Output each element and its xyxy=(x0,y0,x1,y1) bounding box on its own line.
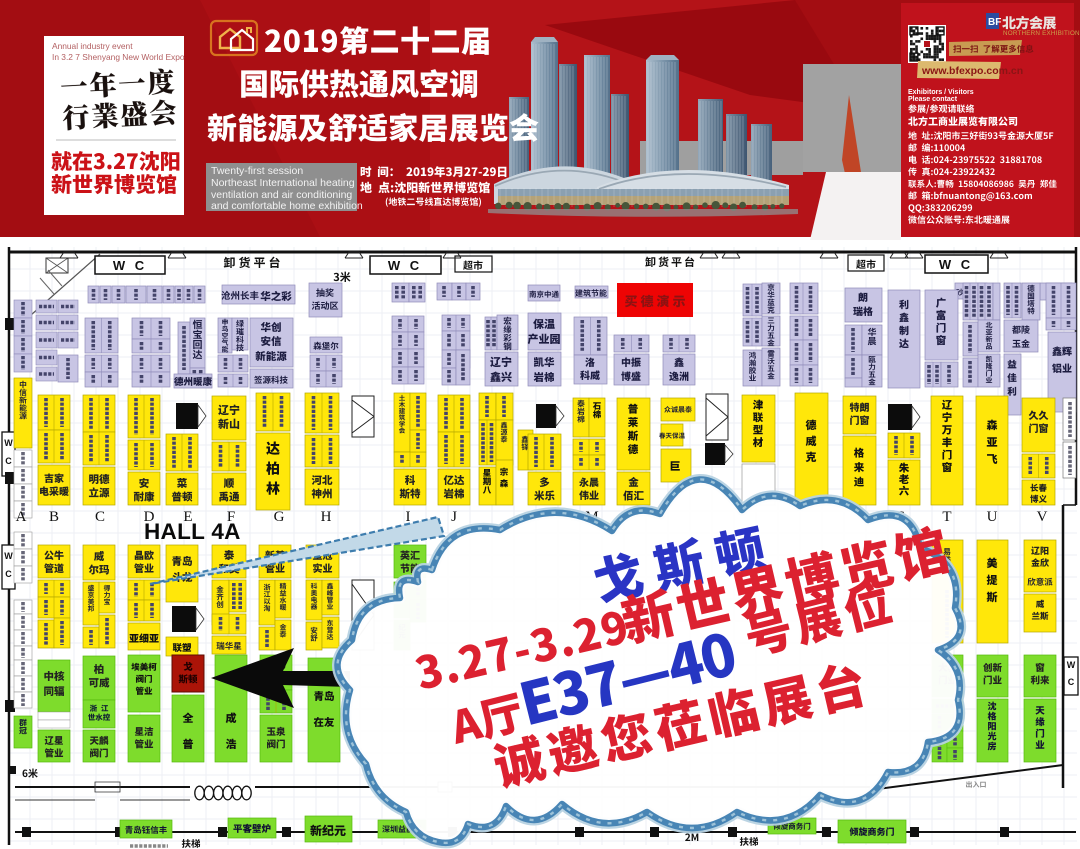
svg-text:T: T xyxy=(942,509,951,525)
svg-text:W C: W C xyxy=(939,257,973,272)
svg-text:HALL 4A: HALL 4A xyxy=(144,519,241,544)
svg-text:V: V xyxy=(1037,509,1048,525)
svg-text:In 3.2 7 Shenyang New World Ex: In 3.2 7 Shenyang New World Expo xyxy=(52,52,185,62)
svg-text:C: C xyxy=(1068,677,1075,687)
svg-text:NORTHERN EXHIBITION: NORTHERN EXHIBITION xyxy=(1003,30,1080,37)
svg-text:Northeast International heatin: Northeast International heating xyxy=(211,177,355,189)
svg-text:J: J xyxy=(451,509,457,525)
svg-text:H: H xyxy=(321,509,332,525)
svg-text:www.bfexpo.com.cn: www.bfexpo.com.cn xyxy=(921,65,1023,77)
svg-text:Exhibitors / Visitors: Exhibitors / Visitors xyxy=(908,89,974,96)
svg-text:Please contact: Please contact xyxy=(908,96,958,103)
svg-text:B: B xyxy=(49,509,59,525)
svg-text:Twenty-first session: Twenty-first session xyxy=(211,165,303,177)
svg-text:W: W xyxy=(1067,660,1076,670)
svg-text:BF: BF xyxy=(988,17,1001,28)
svg-text:W C: W C xyxy=(113,258,147,273)
svg-text:C: C xyxy=(95,509,105,525)
svg-text:C: C xyxy=(5,456,12,466)
svg-text:W: W xyxy=(4,551,13,561)
svg-text:and comfortable home exhibitio: and comfortable home exhibition xyxy=(211,200,363,212)
svg-text:W C: W C xyxy=(388,258,422,273)
svg-text:C: C xyxy=(5,569,12,579)
svg-text:Annual industry event: Annual industry event xyxy=(52,41,133,51)
svg-text:A: A xyxy=(16,509,27,525)
svg-text:U: U xyxy=(987,509,998,525)
svg-text:G: G xyxy=(274,509,285,525)
svg-text:W: W xyxy=(4,438,13,448)
